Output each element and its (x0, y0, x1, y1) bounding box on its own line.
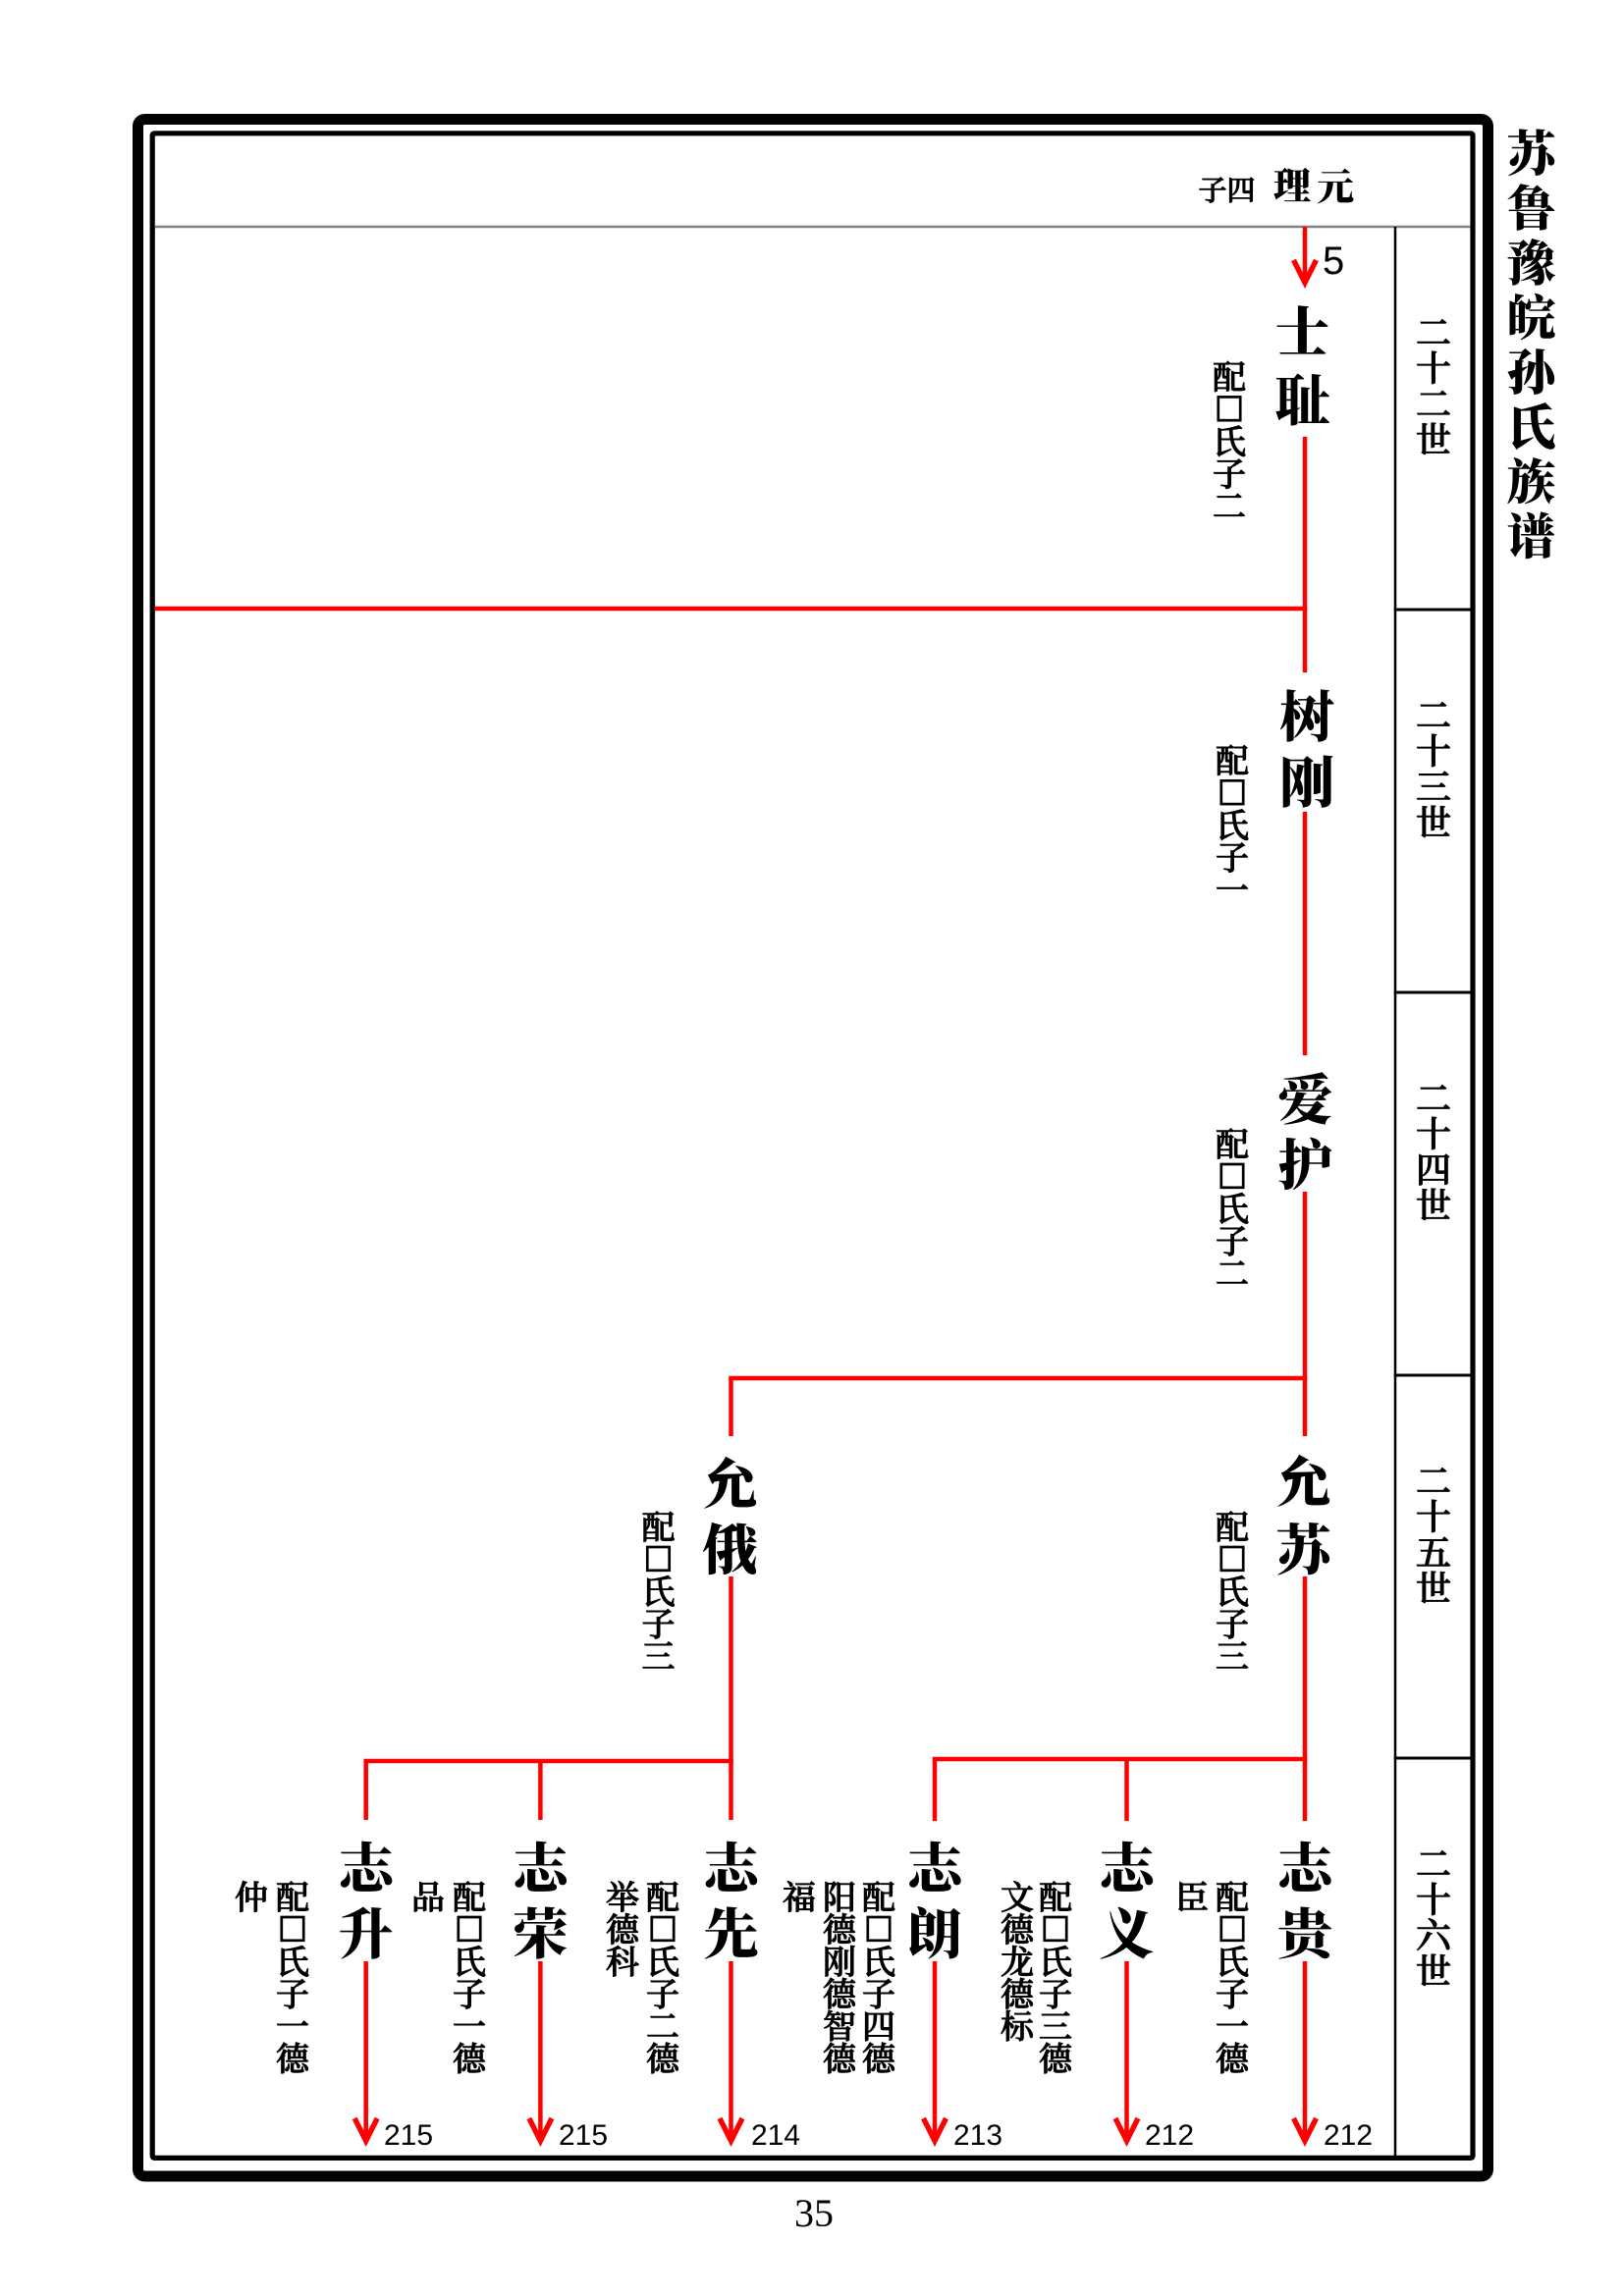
svg-text:213: 213 (953, 2119, 1002, 2152)
svg-text:212: 212 (1145, 2119, 1194, 2152)
svg-text:5: 5 (1323, 240, 1344, 283)
svg-text:212: 212 (1324, 2119, 1373, 2152)
svg-text:215: 215 (384, 2119, 433, 2152)
svg-text:215: 215 (559, 2119, 608, 2152)
svg-text:35: 35 (794, 2191, 834, 2235)
svg-text:214: 214 (751, 2119, 800, 2152)
